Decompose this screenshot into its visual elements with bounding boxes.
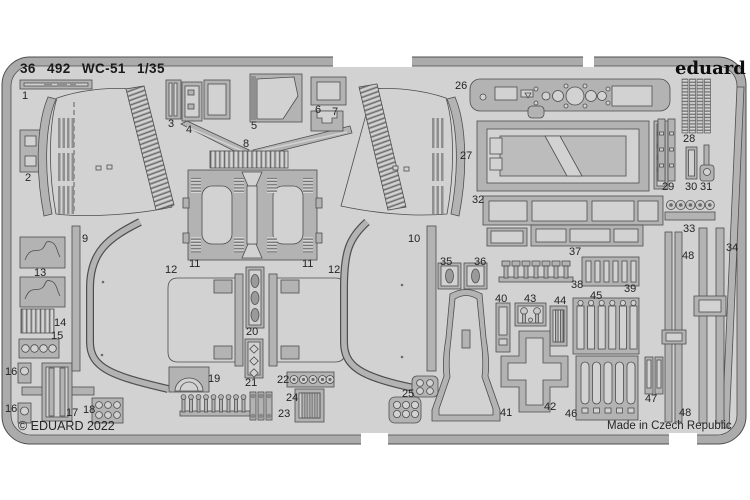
part-11-shape	[183, 170, 322, 260]
part-label-26: 26	[455, 81, 467, 92]
part-label-40: 40	[495, 294, 507, 305]
part-6-shape	[311, 77, 346, 105]
part-22-shape	[287, 372, 334, 387]
part-4-shape	[182, 80, 230, 121]
part-label-2: 2	[25, 173, 31, 184]
part-37-shape	[531, 225, 643, 246]
frame-notch	[361, 433, 388, 448]
frame-notch	[583, 53, 594, 67]
part-label-38: 38	[571, 280, 583, 291]
part-label-32: 32	[472, 195, 484, 206]
part-label-37: 37	[569, 247, 581, 258]
part-9-shape	[72, 226, 80, 371]
fret-scan-page: 36 492 WC-51 1/35 eduard © EDUARD 2022 M…	[0, 0, 750, 500]
part-45-shape	[573, 298, 639, 354]
part-label-31: 31	[700, 182, 712, 193]
part-44-shape	[550, 306, 567, 346]
brand-logo: eduard	[675, 60, 746, 78]
part-14-shape	[21, 309, 54, 333]
part-30-shape	[686, 147, 697, 179]
part-label-36: 36	[474, 257, 486, 268]
part-label-45: 45	[590, 291, 602, 302]
part-1-shape	[20, 80, 92, 89]
part-label-11: 11	[189, 259, 200, 270]
part-27-shape	[477, 121, 649, 191]
part-label-10: 10	[408, 234, 420, 245]
part-label-22: 22	[277, 375, 289, 386]
part-32-shape	[483, 196, 663, 225]
part-8-shape	[210, 151, 288, 168]
part-label-47: 47	[645, 394, 657, 405]
part-label-43: 43	[524, 294, 536, 305]
part-label-15: 15	[51, 331, 63, 342]
part-label-1: 1	[22, 91, 28, 102]
part-label-16: 16	[5, 404, 17, 415]
part-label-33: 33	[683, 224, 695, 235]
part-label-23: 23	[278, 409, 290, 420]
part-label-27: 27	[460, 151, 472, 162]
part-label-12: 12	[165, 265, 177, 276]
part-label-48: 48	[682, 251, 694, 262]
part-label-7: 7	[332, 107, 338, 118]
part-label-35: 35	[440, 257, 452, 268]
part-label-17: 17	[66, 408, 78, 419]
part-5-shape	[250, 74, 302, 122]
part-label-21: 21	[245, 378, 257, 389]
part-label-44: 44	[554, 296, 566, 307]
part-label-46: 46	[565, 409, 577, 420]
copyright-text: © EDUARD 2022	[18, 420, 115, 433]
part-3-shape	[166, 80, 181, 119]
part-40-shape	[496, 303, 510, 352]
part-label-20: 20	[246, 327, 258, 338]
part-19-shape	[169, 367, 209, 392]
part-2-shape	[20, 130, 41, 172]
part-label-25: 25	[402, 389, 414, 400]
part-label-3: 3	[168, 119, 174, 130]
made-in-text: Made in Czech Republic	[607, 421, 732, 433]
part-label-14: 14	[54, 318, 66, 329]
part-label-28: 28	[683, 134, 695, 145]
part-label-41: 41	[500, 408, 512, 419]
part-label-30: 30	[685, 182, 697, 193]
part-label-18: 18	[83, 405, 95, 416]
part-label-29: 29	[662, 182, 674, 193]
part-label-13: 13	[34, 268, 46, 279]
part-label-11: 11	[302, 259, 313, 270]
part-label-42: 42	[544, 402, 556, 413]
part-46-shape	[576, 356, 638, 420]
frame-notch	[333, 53, 412, 67]
part-label-9: 9	[82, 234, 88, 245]
part-20-shape	[246, 267, 264, 328]
part-label-12: 12	[328, 265, 340, 276]
part-label-16: 16	[5, 367, 17, 378]
part-label-39: 39	[624, 284, 636, 295]
part-39-shape	[582, 257, 639, 286]
part-label-4: 4	[186, 125, 192, 136]
part-21-shape	[245, 339, 263, 378]
part-label-5: 5	[251, 121, 257, 132]
part-label-48: 48	[679, 408, 691, 419]
part-label-6: 6	[315, 105, 321, 116]
part-label-24: 24	[286, 393, 298, 404]
part-24-shape	[295, 389, 324, 422]
frame-notch	[669, 433, 697, 448]
part-label-8: 8	[243, 139, 249, 150]
part-label-19: 19	[208, 374, 220, 385]
sheet-title: 36 492 WC-51 1/35	[20, 62, 165, 76]
part-10-shape	[427, 226, 436, 371]
part-label-34: 34	[726, 243, 738, 254]
part-23-shape	[250, 392, 272, 420]
part-43-shape	[515, 303, 546, 326]
